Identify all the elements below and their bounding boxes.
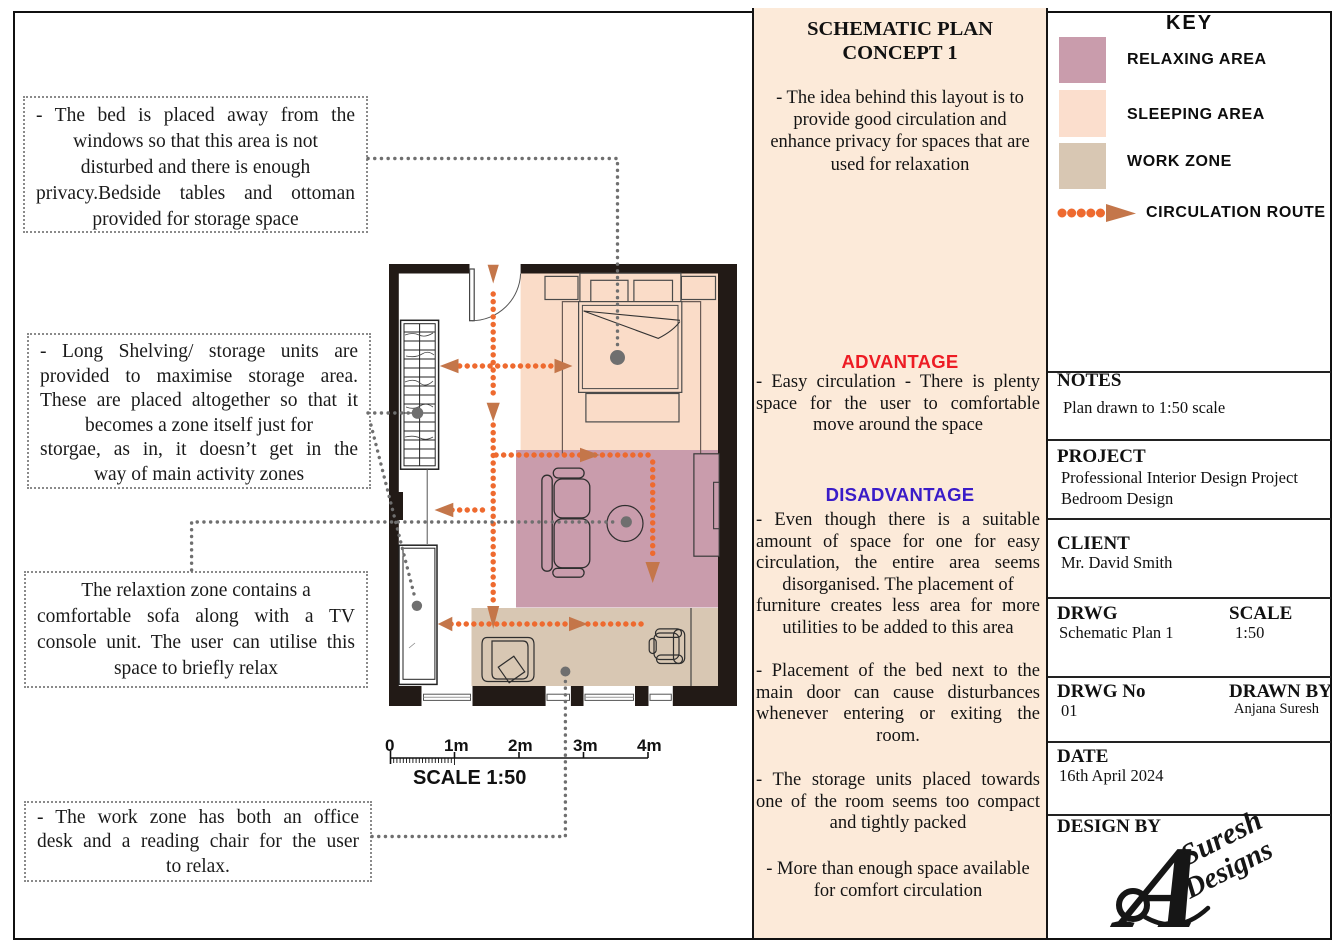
svg-text:1m: 1m [444,736,469,755]
svg-text:SCALE 1:50: SCALE 1:50 [413,767,526,789]
svg-text:4m: 4m [637,736,662,755]
svg-text:2m: 2m [508,736,533,755]
svg-text:3m: 3m [573,736,598,755]
svg-text:0: 0 [385,736,394,755]
